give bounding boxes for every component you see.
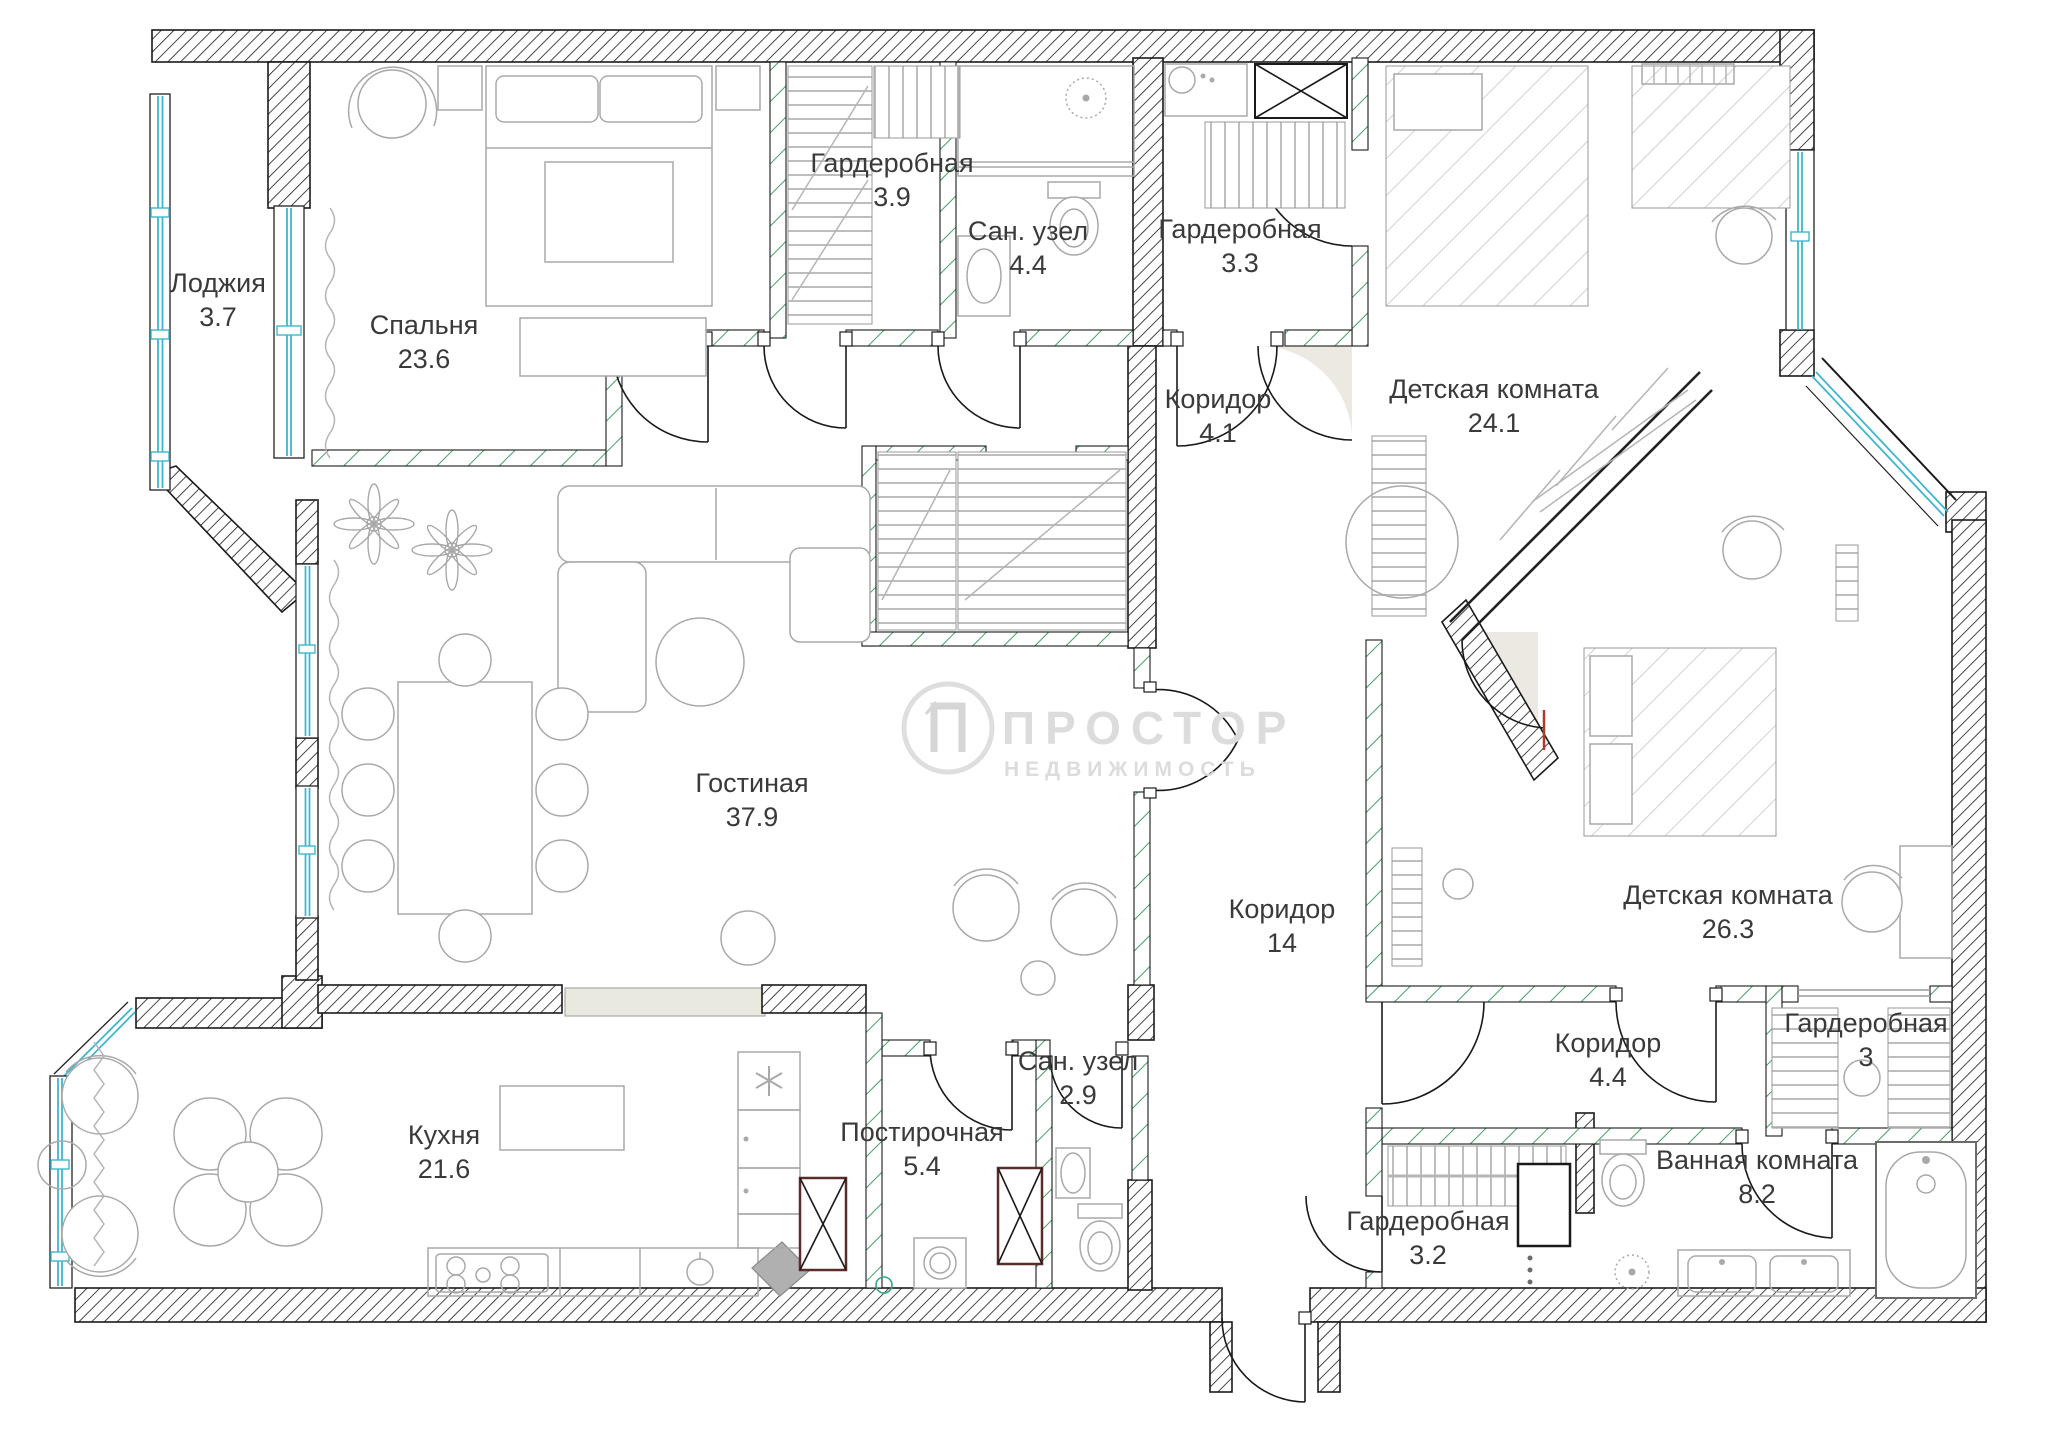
svg-text:21.6: 21.6 <box>418 1154 471 1184</box>
room-label-wardrobe-32: Гардеробная3.2 <box>1346 1206 1509 1270</box>
svg-text:2.9: 2.9 <box>1059 1080 1097 1110</box>
svg-text:4.4: 4.4 <box>1009 250 1047 280</box>
room-label-children-241: Детская комната24.1 <box>1389 374 1600 438</box>
watermark: ПРОСТОР НЕДВИЖИМОСТЬ <box>904 684 1296 781</box>
svg-text:3.7: 3.7 <box>199 302 237 332</box>
svg-text:Коридор: Коридор <box>1229 894 1336 924</box>
svg-text:4.1: 4.1 <box>1199 418 1237 448</box>
svg-text:Гардеробная: Гардеробная <box>810 148 973 178</box>
room-label-loggia: Лоджия3.7 <box>170 268 266 332</box>
room-label-children-263: Детская комната26.3 <box>1623 880 1834 944</box>
room-label-corridor-41: Коридор4.1 <box>1165 384 1272 448</box>
wardrobe33-fixtures <box>1165 64 1347 118</box>
room-label-kitchen: Кухня21.6 <box>408 1120 480 1184</box>
room-label-laundry: Постирочная5.4 <box>840 1117 1003 1181</box>
svg-text:5.4: 5.4 <box>903 1151 941 1181</box>
svg-text:Коридор: Коридор <box>1165 384 1272 414</box>
furniture <box>38 64 1976 1298</box>
svg-text:Детская комната: Детская комната <box>1623 880 1834 910</box>
room-label-bedroom: Спальня23.6 <box>370 310 479 374</box>
svg-text:8.2: 8.2 <box>1738 1179 1776 1209</box>
svg-text:Сан. узел: Сан. узел <box>968 216 1088 246</box>
watermark-logo-icon <box>904 684 992 772</box>
living-window-lower <box>296 786 318 918</box>
watermark-brand: ПРОСТОР <box>1002 702 1296 754</box>
svg-text:3: 3 <box>1858 1042 1873 1072</box>
room-label-wardrobe-33: Гардеробная3.3 <box>1158 214 1321 278</box>
room-label-corridor-14: Коридор14 <box>1229 894 1336 958</box>
living-window-upper <box>296 564 318 738</box>
svg-text:Коридор: Коридор <box>1555 1028 1662 1058</box>
svg-text:Ванная комната: Ванная комната <box>1656 1145 1859 1175</box>
svg-text:Кухня: Кухня <box>408 1120 480 1150</box>
room-label-bath: Ванная комната8.2 <box>1656 1145 1859 1209</box>
svg-text:Гардеробная: Гардеробная <box>1158 214 1321 244</box>
svg-text:Лоджия: Лоджия <box>170 268 266 298</box>
svg-text:Постирочная: Постирочная <box>840 1117 1003 1147</box>
svg-text:Детская комната: Детская комната <box>1389 374 1600 404</box>
svg-text:Спальня: Спальня <box>370 310 479 340</box>
svg-text:23.6: 23.6 <box>398 344 451 374</box>
svg-text:4.4: 4.4 <box>1589 1062 1627 1092</box>
svg-text:24.1: 24.1 <box>1468 408 1521 438</box>
svg-text:3.3: 3.3 <box>1221 248 1259 278</box>
svg-text:3.2: 3.2 <box>1409 1240 1447 1270</box>
laundry-fixtures <box>800 1168 1042 1293</box>
bathroom2-fixtures <box>1056 1148 1122 1271</box>
svg-text:Гардеробная: Гардеробная <box>1784 1008 1947 1038</box>
watermark-subtitle: НЕДВИЖИМОСТЬ <box>1004 758 1261 781</box>
svg-text:Гостиная: Гостиная <box>695 768 808 798</box>
floor-plan: ПРОСТОР НЕДВИЖИМОСТЬ Лоджия3.7 Спальня23… <box>0 0 2048 1448</box>
svg-text:37.9: 37.9 <box>726 802 779 832</box>
svg-text:Сан. узел: Сан. узел <box>1018 1046 1138 1076</box>
svg-text:3.9: 3.9 <box>873 182 911 212</box>
svg-text:Гардеробная: Гардеробная <box>1346 1206 1509 1236</box>
children2-diagonal-window <box>1806 372 1948 526</box>
svg-text:26.3: 26.3 <box>1702 914 1755 944</box>
room-label-living: Гостиная37.9 <box>695 768 808 832</box>
loggia-window <box>150 94 170 490</box>
room-label-corridor-44: Коридор4.4 <box>1555 1028 1662 1092</box>
bedroom-loggia-window <box>274 206 304 458</box>
bedroom-furniture <box>326 66 761 458</box>
svg-text:14: 14 <box>1267 928 1297 958</box>
floor-plan-svg: ПРОСТОР НЕДВИЖИМОСТЬ Лоджия3.7 Спальня23… <box>0 0 2048 1448</box>
